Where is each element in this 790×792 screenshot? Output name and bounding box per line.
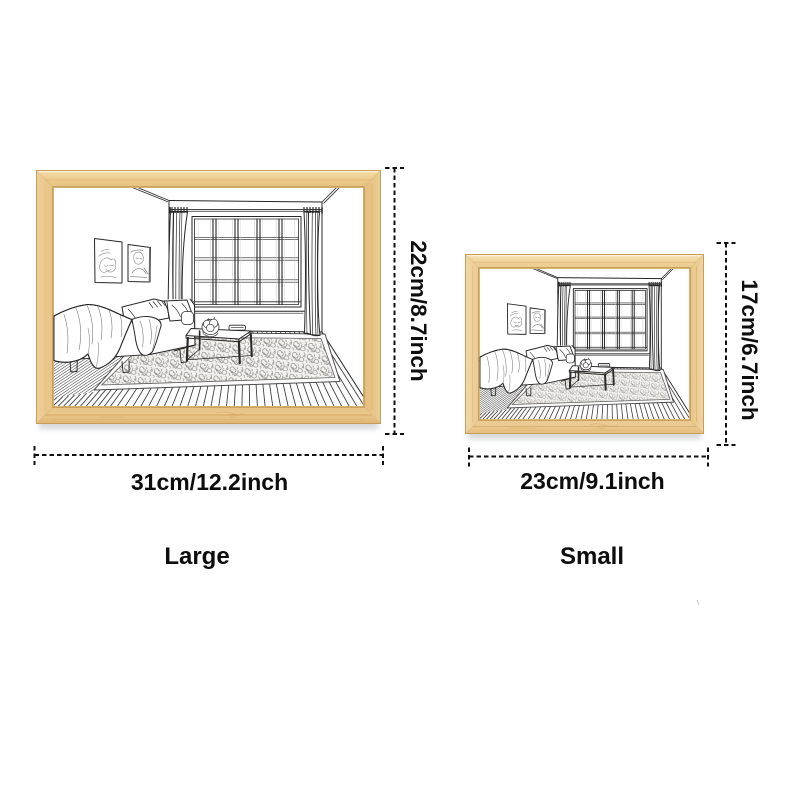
svg-text:31cm/12.2inch: 31cm/12.2inch (131, 469, 288, 495)
svg-text:17cm/6.7inch: 17cm/6.7inch (737, 279, 762, 420)
svg-text:Large: Large (164, 543, 229, 570)
svg-text:23cm/9.1inch: 23cm/9.1inch (520, 468, 664, 494)
svg-text:22cm/8.7inch: 22cm/8.7inch (406, 240, 431, 381)
svg-text:Small: Small (560, 543, 624, 570)
